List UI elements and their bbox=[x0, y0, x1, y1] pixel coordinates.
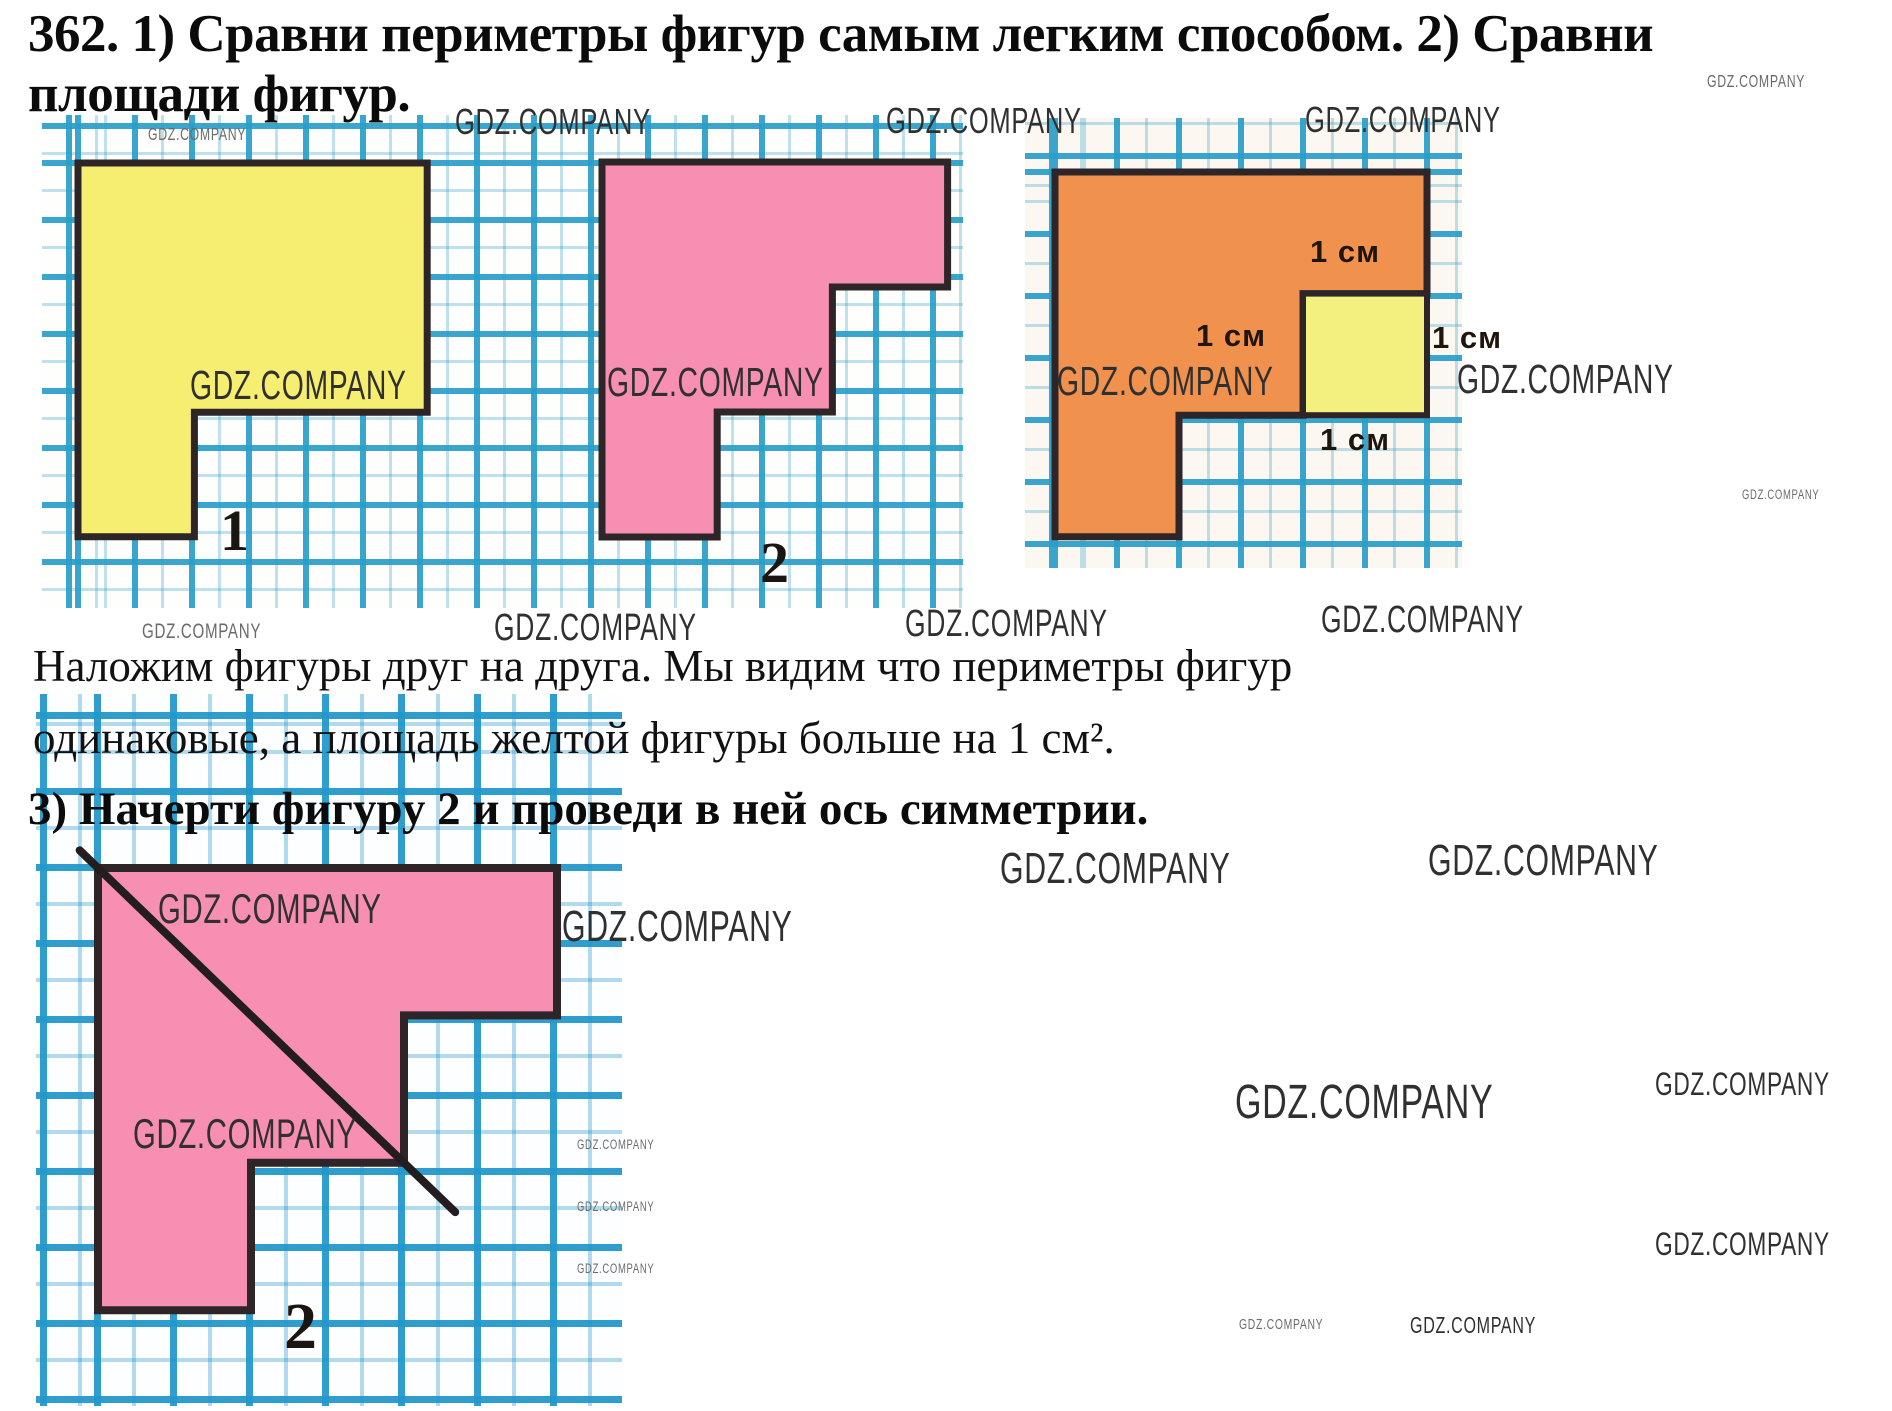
watermark-text: GDZ.COMPANY bbox=[1239, 1318, 1323, 1333]
figure-number-label: 2 bbox=[760, 534, 789, 592]
dimension-label-1cm: 1 см bbox=[1320, 424, 1390, 455]
watermark-text: GDZ.COMPANY bbox=[1000, 848, 1231, 891]
watermark-text: GDZ.COMPANY bbox=[1410, 1314, 1536, 1337]
watermark-text: GDZ.COMPANY bbox=[133, 1113, 357, 1155]
textbook-solution-page: 362. 1) Сравни периметры фигур самым лег… bbox=[0, 0, 1892, 1411]
watermark-text: GDZ.COMPANY bbox=[577, 1138, 654, 1152]
watermark-text: GDZ.COMPANY bbox=[455, 104, 651, 140]
watermark-text: GDZ.COMPANY bbox=[1655, 1228, 1830, 1260]
watermark-text: GDZ.COMPANY bbox=[1457, 359, 1674, 400]
watermark-text: GDZ.COMPANY bbox=[1305, 102, 1501, 138]
dimension-label-1cm: 1 см bbox=[1310, 236, 1380, 267]
dimension-label-1cm: 1 см bbox=[1432, 322, 1502, 353]
watermark-text: GDZ.COMPANY bbox=[1707, 73, 1805, 91]
problem-title-line-2: площади фигур. bbox=[28, 64, 410, 124]
solution-text-line-2: одинаковые, а площадь желтой фигуры боль… bbox=[33, 712, 1115, 764]
watermark-text: GDZ.COMPANY bbox=[886, 103, 1082, 139]
watermark-text: GDZ.COMPANY bbox=[1655, 1068, 1830, 1100]
figure-2-pink bbox=[562, 122, 988, 577]
figure-1-yellow bbox=[38, 123, 467, 577]
problem-title-line-1: 362. 1) Сравни периметры фигур самым лег… bbox=[28, 4, 1653, 64]
watermark-text: GDZ.COMPANY bbox=[148, 126, 246, 144]
figure-3-orange-overlay bbox=[1015, 132, 1467, 577]
watermark-text: GDZ.COMPANY bbox=[142, 620, 261, 642]
watermark-text: GDZ.COMPANY bbox=[905, 606, 1108, 644]
figure-number-label: 1 bbox=[220, 502, 249, 560]
watermark-text: GDZ.COMPANY bbox=[1742, 488, 1819, 502]
watermark-text: GDZ.COMPANY bbox=[1321, 602, 1524, 640]
watermark-text: GDZ.COMPANY bbox=[190, 365, 407, 406]
dimension-label-1cm: 1 см bbox=[1196, 320, 1266, 351]
watermark-text: GDZ.COMPANY bbox=[1235, 1078, 1493, 1127]
watermark-text: GDZ.COMPANY bbox=[562, 906, 793, 949]
watermark-text: GDZ.COMPANY bbox=[577, 1200, 654, 1214]
watermark-text: GDZ.COMPANY bbox=[1057, 361, 1274, 402]
figure-number-label: 2 bbox=[284, 1294, 317, 1360]
watermark-text: GDZ.COMPANY bbox=[158, 888, 382, 930]
watermark-text: GDZ.COMPANY bbox=[607, 362, 824, 403]
watermark-text: GDZ.COMPANY bbox=[1428, 840, 1659, 883]
watermark-text: GDZ.COMPANY bbox=[494, 610, 697, 648]
one-square-centimeter-overlay bbox=[1303, 294, 1427, 416]
watermark-text: GDZ.COMPANY bbox=[577, 1262, 654, 1276]
